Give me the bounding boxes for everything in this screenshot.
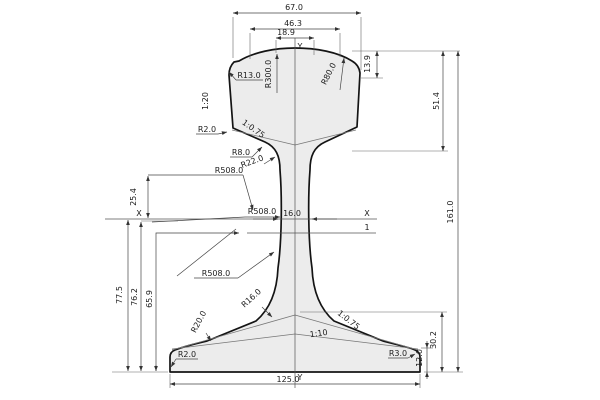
leader bbox=[218, 132, 227, 134]
axis-y-top-label: Y bbox=[297, 42, 303, 51]
radius-web-upper-label: R508.0 bbox=[215, 166, 243, 175]
dim-foot-height-label: 30.2 bbox=[429, 331, 438, 349]
radius-head-lower-corner: R2.0 bbox=[196, 125, 227, 134]
leader bbox=[238, 252, 274, 278]
dim-gauge-corner-drop-label: 13.9 bbox=[363, 55, 372, 73]
leader-zigzag bbox=[152, 217, 245, 222]
drawing-canvas: X X 1 Y Y 67.0 46.3 18.9 13.9 51.4 1 bbox=[0, 0, 600, 400]
radius-web-foot-fillet: R16.0 bbox=[240, 287, 272, 317]
section-1-label: 1 bbox=[364, 223, 369, 232]
radius-web-lower: R508.0 bbox=[177, 229, 274, 278]
radius-crown-label: R300.0 bbox=[264, 60, 273, 88]
radius-web-foot-fillet-label: R16.0 bbox=[240, 287, 263, 309]
radius-web-mid-label: R508.0 bbox=[248, 207, 276, 216]
axis-x-right-label: X bbox=[364, 209, 370, 218]
radius-web-lower-label: R508.0 bbox=[202, 269, 230, 278]
dim-head-height-label: 51.4 bbox=[432, 92, 441, 110]
rail-section-drawing: X X 1 Y Y 67.0 46.3 18.9 13.9 51.4 1 bbox=[0, 0, 600, 400]
dim-web-thickness-label: 16.0 bbox=[283, 209, 301, 218]
dim-foot-width-label: 125.0 bbox=[277, 375, 300, 384]
radius-head-lower-corner-label: R2.0 bbox=[198, 125, 216, 134]
dim-foot-to-axis-b-label: 76.2 bbox=[130, 288, 139, 306]
dim-foot-to-axis-a-label: 77.5 bbox=[115, 286, 124, 304]
dim-gauge-corner-drop: 13.9 bbox=[352, 51, 460, 78]
dim-crown-flat-width-label: 18.9 bbox=[277, 28, 295, 37]
slope-head-side-label: 1:20 bbox=[201, 92, 210, 110]
radius-web-mid: R508.0 bbox=[152, 207, 280, 222]
dim-foot-edge-height-label: 12.0 bbox=[415, 349, 424, 367]
radius-foot-edge-left-label: R2.0 bbox=[178, 350, 196, 359]
radius-foot-top-fillet: R20.0 bbox=[189, 309, 211, 341]
dim-head-width-label: 67.0 bbox=[285, 3, 303, 12]
dim-total-height: 161.0 bbox=[424, 51, 463, 372]
dim-foot-to-section-label: 65.9 bbox=[145, 290, 154, 308]
radius-foot-edge-right-label: R3.0 bbox=[389, 349, 407, 358]
radius-head-web-fillet-small-label: R8.0 bbox=[232, 148, 250, 157]
radius-foot-top-fillet-label: R20.0 bbox=[189, 309, 208, 334]
leader bbox=[243, 175, 253, 210]
dim-axis-offset-label: 25.4 bbox=[129, 188, 138, 206]
dim-head-mid-width-label: 46.3 bbox=[284, 19, 302, 28]
leader bbox=[264, 157, 275, 164]
radius-head-corner-label: R13.0 bbox=[237, 71, 260, 80]
axis-x-left-label: X bbox=[136, 209, 142, 218]
radius-web-upper: R508.0 bbox=[148, 166, 253, 210]
dim-total-height-label: 161.0 bbox=[446, 201, 455, 224]
